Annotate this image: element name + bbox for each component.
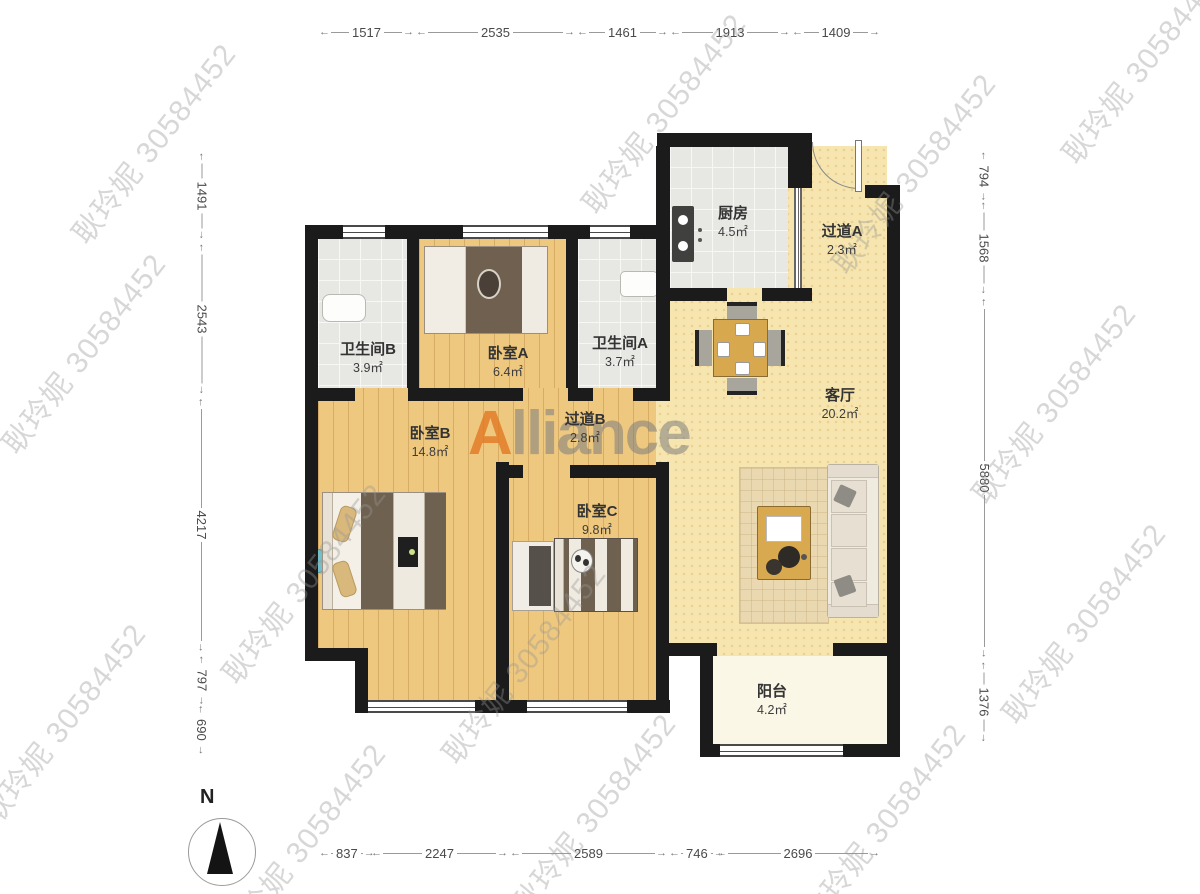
plate — [753, 342, 766, 357]
room-area: 4.5㎡ — [718, 224, 748, 240]
dim-line — [728, 853, 781, 854]
north-arrow-icon — [207, 822, 233, 874]
room-name: 厨房 — [718, 205, 748, 222]
dimension-bottom-2: ←2247→ — [370, 845, 509, 861]
dim-value: 2696 — [781, 846, 816, 861]
wall — [566, 238, 578, 388]
dim-value: 794 — [977, 163, 992, 191]
wall — [788, 133, 812, 188]
room-label-bedroom-a: 卧室A 6.4㎡ — [488, 344, 529, 380]
dimension-left-3: ←4217→ — [194, 396, 210, 654]
dim-line — [606, 853, 655, 854]
arrow-right-icon: → — [197, 744, 208, 757]
arrow-right-icon: → — [980, 647, 991, 660]
arrow-left-icon: ← — [979, 200, 990, 213]
dim-line — [747, 32, 778, 33]
window — [343, 225, 385, 239]
dim-value: 2535 — [478, 25, 513, 40]
dim-value: 837 — [333, 846, 361, 861]
wardrobe — [512, 541, 554, 611]
watermark-text: 耿玲妮 30584452 — [990, 512, 1175, 731]
wall — [570, 465, 669, 478]
magazine — [766, 516, 802, 542]
dining-chair — [768, 330, 785, 366]
balcony-window — [720, 744, 843, 757]
room-area: 3.9㎡ — [340, 360, 396, 376]
dim-value: 1409 — [819, 25, 854, 40]
room-label-hallway-a: 过道A 2.3㎡ — [822, 222, 863, 258]
watermark-text: 耿玲妮 30584452 — [1050, 0, 1200, 172]
dim-value: 2543 — [195, 302, 210, 337]
dim-line — [682, 32, 713, 33]
arrow-right-icon: → — [197, 384, 208, 397]
dim-line — [428, 32, 478, 33]
dim-value: 797 — [195, 667, 210, 695]
pillow-icon — [477, 269, 501, 299]
room-name: 卫生间A — [592, 335, 648, 352]
dim-value: 2589 — [571, 846, 606, 861]
dining-table — [713, 319, 768, 377]
dimension-top-5: ←1409→ — [791, 24, 881, 40]
window — [590, 225, 630, 239]
dimension-top-1: ←1517→ — [318, 24, 415, 40]
arrow-right-icon: → — [402, 27, 415, 38]
dim-value: 1568 — [977, 231, 992, 266]
dim-value: 1376 — [977, 685, 992, 720]
arrow-left-icon: ← — [669, 27, 682, 38]
dimension-top-3: ←1461→ — [576, 24, 669, 40]
dim-line — [522, 853, 571, 854]
room-label-balcony: 阳台 4.2㎡ — [757, 682, 787, 718]
dimension-right-1: ←794→ — [977, 150, 993, 199]
dim-value: 1491 — [195, 179, 210, 214]
stove-knob — [698, 228, 702, 232]
arrow-left-icon: ← — [197, 703, 208, 716]
room-name: 卧室B — [410, 425, 451, 442]
wall — [407, 238, 419, 388]
dim-line — [985, 309, 986, 461]
arrow-right-icon: → — [979, 284, 990, 297]
room-label-bedroom-b: 卧室B 14.8㎡ — [410, 424, 451, 460]
coffee-table — [757, 506, 811, 580]
arrow-left-icon: ← — [980, 296, 991, 309]
dim-line — [202, 255, 203, 302]
bathtub — [322, 294, 366, 322]
bed-b — [322, 492, 446, 610]
window — [368, 700, 475, 713]
dim-value: 690 — [195, 716, 210, 744]
dimension-bottom-1: ←837→ — [318, 845, 370, 861]
dining-chair — [727, 378, 757, 395]
burner-icon — [678, 215, 688, 225]
dim-line — [985, 495, 986, 647]
arrow-left-icon: ← — [318, 27, 331, 38]
washbasin — [620, 271, 658, 297]
window — [463, 225, 548, 239]
dim-line — [331, 32, 349, 33]
decor-bowl — [766, 559, 782, 575]
dim-value: 1913 — [713, 25, 748, 40]
bed-a — [424, 246, 548, 334]
dimension-bottom-5: ←2696→ — [715, 845, 881, 861]
wall — [700, 643, 713, 757]
room-area: 9.8㎡ — [577, 522, 618, 538]
tv — [398, 537, 418, 567]
dim-line — [457, 853, 496, 854]
dim-value: 1517 — [349, 25, 384, 40]
arrow-left-icon: ← — [979, 660, 990, 673]
north-label: N — [200, 786, 214, 809]
dim-value: 2247 — [422, 846, 457, 861]
dim-value: 4217 — [195, 508, 210, 543]
dim-line — [804, 32, 819, 33]
kitchen-sliding-door — [794, 188, 802, 288]
dim-line — [202, 409, 203, 508]
watermark-text: 耿玲妮 30584452 — [0, 612, 154, 831]
balcony-floor — [713, 656, 887, 744]
sofa-cushion — [831, 514, 867, 547]
wall — [833, 643, 887, 656]
wall — [656, 462, 669, 713]
dim-line — [853, 32, 868, 33]
room-name: 客厅 — [825, 387, 855, 404]
dim-line — [815, 853, 868, 854]
wall — [496, 462, 509, 713]
arrow-right-icon: → — [563, 27, 576, 38]
wall — [568, 388, 593, 401]
dimension-bottom-3: ←2589→ — [509, 845, 668, 861]
room-area: 3.7㎡ — [592, 354, 648, 370]
dim-line — [384, 32, 402, 33]
dim-line — [984, 265, 985, 283]
arrow-left-icon: ← — [509, 848, 522, 859]
entry-door-leaf — [855, 140, 862, 192]
arrow-left-icon: ← — [197, 654, 208, 667]
room-area: 2.8㎡ — [565, 430, 606, 446]
dim-line — [202, 336, 203, 383]
room-name: 卧室A — [488, 345, 529, 362]
window — [527, 700, 627, 713]
dimension-top-4: ←1913→ — [669, 24, 791, 40]
bed-headboard — [323, 493, 333, 609]
arrow-left-icon: ← — [415, 27, 428, 38]
room-area: 4.2㎡ — [757, 702, 787, 718]
room-label-hallway-b: 过道B 2.8㎡ — [565, 410, 606, 446]
decor-dot — [801, 554, 807, 560]
room-label-bathroom-a: 卫生间A 3.7㎡ — [592, 334, 648, 370]
arrow-left-icon: ← — [197, 151, 208, 164]
room-area: 20.2㎡ — [822, 406, 859, 422]
arrow-right-icon: → — [778, 27, 791, 38]
room-name: 阳台 — [757, 683, 787, 700]
dim-line — [589, 32, 605, 33]
panda-pillow-icon — [571, 549, 593, 573]
dim-line — [513, 32, 563, 33]
wall — [762, 288, 812, 301]
dim-value: 746 — [683, 846, 711, 861]
room-area: 6.4㎡ — [488, 364, 529, 380]
arrow-right-icon: → — [197, 229, 208, 242]
dim-line — [984, 719, 985, 731]
stove-knob — [698, 238, 702, 242]
room-label-bathroom-b: 卫生间B 3.9㎡ — [340, 340, 396, 376]
arrow-left-icon: ← — [791, 27, 804, 38]
arrow-left-icon: ← — [318, 848, 331, 859]
arrow-right-icon: → — [656, 27, 669, 38]
arrow-right-icon: → — [655, 848, 668, 859]
plate — [717, 342, 730, 357]
arrow-left-icon: ← — [576, 27, 589, 38]
plate — [735, 362, 750, 375]
dimension-left-5: ←690→ — [194, 703, 210, 745]
dimension-right-2: ←1568→ — [977, 200, 993, 297]
arrow-right-icon: → — [868, 27, 881, 38]
room-name: 卧室C — [577, 503, 618, 520]
arrow-right-icon: → — [197, 641, 208, 654]
dim-line — [202, 213, 203, 228]
watermark-text: 耿玲妮 30584452 — [0, 242, 174, 461]
dim-value: 1461 — [605, 25, 640, 40]
arrow-left-icon: ← — [370, 848, 383, 859]
arrow-left-icon: ← — [668, 848, 681, 859]
arrow-left-icon: ← — [197, 242, 208, 255]
arrow-left-icon: ← — [197, 396, 208, 409]
wall — [656, 146, 670, 401]
dimension-left-4: ←797→ — [195, 654, 211, 703]
room-label-kitchen: 厨房 4.5㎡ — [718, 204, 748, 240]
arrow-right-icon: → — [979, 732, 990, 745]
room-name: 过道A — [822, 223, 863, 240]
dim-value: 5880 — [978, 461, 993, 496]
arrow-left-icon: ← — [979, 150, 990, 163]
stove — [672, 206, 694, 262]
bed-headboard — [555, 539, 564, 611]
dimension-left-2: ←2543→ — [195, 242, 211, 397]
wall — [355, 648, 368, 713]
dim-line — [984, 673, 985, 685]
dimension-bottom-4: ←746→ — [668, 845, 715, 861]
dim-line — [383, 853, 422, 854]
room-label-bedroom-c: 卧室C 9.8㎡ — [577, 502, 618, 538]
floor-plan-canvas: 卫生间B 3.9㎡ 卧室A 6.4㎡ 卫生间A 3.7㎡ 厨房 4.5㎡ 过道A… — [0, 0, 1200, 894]
watermark-text: 耿玲妮 30584452 — [500, 702, 685, 894]
dimension-right-4: ←1376→ — [977, 660, 993, 745]
pillow — [331, 559, 358, 598]
panda-eye — [583, 559, 589, 566]
bed-c — [554, 538, 638, 612]
tv-light — [409, 549, 415, 555]
watermark-text: 耿玲妮 30584452 — [60, 32, 245, 251]
dimension-right-3: ←5880→ — [977, 296, 993, 660]
dim-line — [984, 213, 985, 231]
plate — [735, 323, 750, 336]
burner-icon — [678, 241, 688, 251]
sofa-armrest — [828, 465, 878, 478]
room-name: 过道B — [565, 411, 606, 428]
pillow — [331, 504, 358, 543]
dining-chair — [695, 330, 712, 366]
arrow-left-icon: ← — [715, 848, 728, 859]
dimension-top-2: ←2535→ — [415, 24, 576, 40]
room-label-living-room: 客厅 20.2㎡ — [822, 386, 859, 422]
wall — [509, 465, 523, 478]
wall — [887, 185, 900, 757]
sofa — [827, 464, 879, 618]
bed-sheet — [425, 247, 466, 333]
dining-chair — [727, 302, 757, 319]
wall — [408, 388, 523, 401]
panda-eye — [575, 555, 581, 562]
dim-line — [640, 32, 656, 33]
wardrobe-interior — [529, 546, 551, 606]
wall — [305, 225, 318, 661]
arrow-right-icon: → — [868, 848, 881, 859]
dimension-left-1: ←1491→ — [195, 151, 211, 242]
dim-line — [202, 164, 203, 179]
arrow-right-icon: → — [496, 848, 509, 859]
room-area: 14.8㎡ — [410, 444, 451, 460]
room-area: 2.3㎡ — [822, 242, 863, 258]
dim-line — [202, 542, 203, 641]
room-name: 卫生间B — [340, 341, 396, 358]
